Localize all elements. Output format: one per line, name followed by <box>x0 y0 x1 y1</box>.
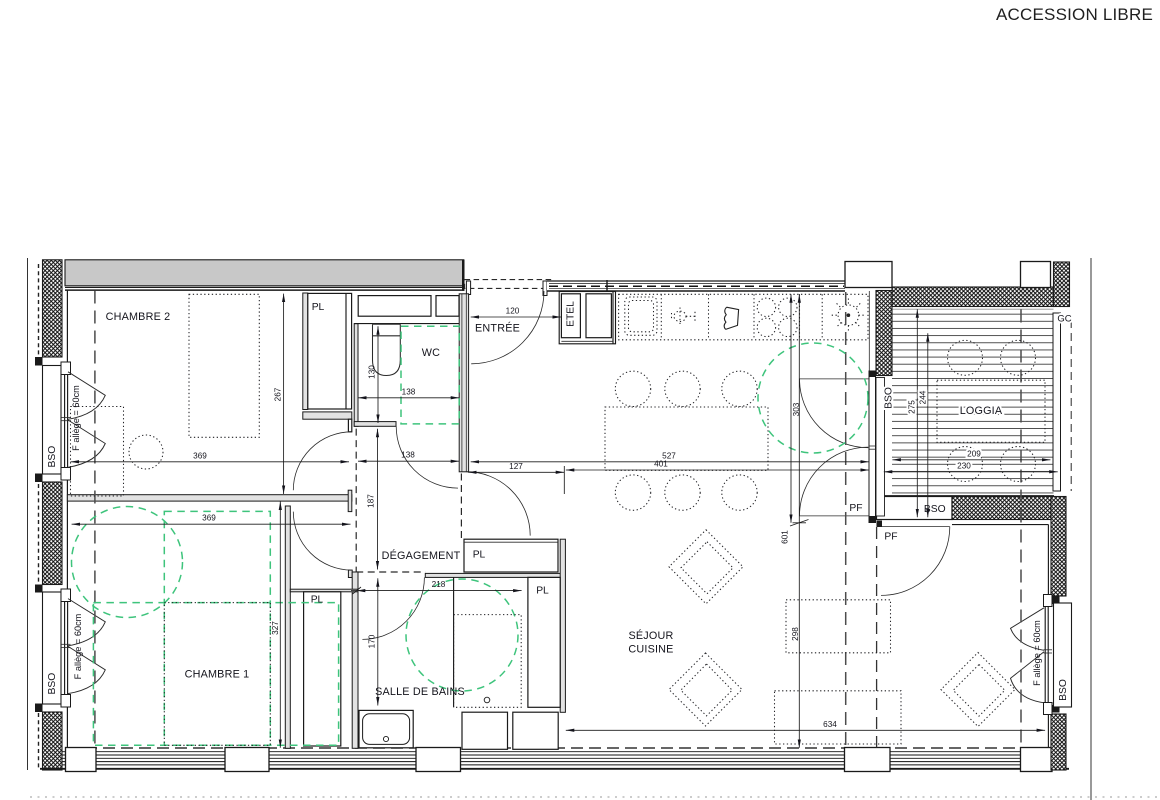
svg-text:PF: PF <box>849 503 862 514</box>
svg-text:303: 303 <box>792 402 801 416</box>
svg-text:BSO: BSO <box>47 673 58 695</box>
svg-text:209: 209 <box>967 449 981 458</box>
svg-text:PL: PL <box>312 302 325 313</box>
svg-text:127: 127 <box>509 462 523 471</box>
svg-text:DÉGAGEMENT: DÉGAGEMENT <box>382 549 461 562</box>
svg-text:244: 244 <box>918 390 927 404</box>
svg-text:GC: GC <box>1057 314 1071 325</box>
svg-text:130: 130 <box>368 365 377 379</box>
svg-text:CHAMBRE 2: CHAMBRE 2 <box>106 311 171 323</box>
svg-text:CUISINE: CUISINE <box>628 644 673 656</box>
svg-text:BSO: BSO <box>47 446 58 468</box>
svg-text:369: 369 <box>202 514 216 523</box>
svg-text:F allège = 60cm: F allège = 60cm <box>71 385 81 451</box>
svg-text:138: 138 <box>401 451 415 460</box>
svg-text:SALLE DE BAINS: SALLE DE BAINS <box>375 686 465 698</box>
svg-text:BSO: BSO <box>1058 679 1069 701</box>
svg-text:230: 230 <box>957 461 971 470</box>
svg-text:F allège = 60cm: F allège = 60cm <box>1032 620 1042 686</box>
svg-text:401: 401 <box>654 460 668 469</box>
svg-text:LOGGIA: LOGGIA <box>960 405 1003 417</box>
svg-text:369: 369 <box>193 451 207 460</box>
svg-text:ENTRÉE: ENTRÉE <box>475 322 520 335</box>
svg-text:170: 170 <box>367 634 376 648</box>
svg-text:275: 275 <box>907 400 916 414</box>
svg-text:PL: PL <box>536 586 549 597</box>
svg-text:SÉJOUR: SÉJOUR <box>629 629 674 642</box>
svg-text:601: 601 <box>781 530 790 544</box>
svg-text:298: 298 <box>791 627 800 641</box>
svg-text:PL: PL <box>473 550 486 561</box>
svg-text:120: 120 <box>506 307 520 316</box>
svg-text:138: 138 <box>402 387 416 396</box>
svg-text:BSO: BSO <box>924 504 946 515</box>
svg-text:CHAMBRE 1: CHAMBRE 1 <box>185 669 250 681</box>
svg-text:F allège = 60cm: F allège = 60cm <box>73 613 83 679</box>
svg-text:267: 267 <box>274 387 283 401</box>
svg-text:634: 634 <box>823 720 837 729</box>
svg-text:PF: PF <box>884 532 897 543</box>
svg-text:ACCESSION LIBRE: ACCESSION LIBRE <box>996 5 1153 24</box>
svg-text:PL: PL <box>311 595 324 606</box>
svg-text:218: 218 <box>432 580 446 589</box>
svg-text:WC: WC <box>422 347 440 359</box>
svg-text:ETEL: ETEL <box>566 301 577 327</box>
svg-text:187: 187 <box>367 494 376 508</box>
svg-text:327: 327 <box>271 621 280 635</box>
svg-text:BSO: BSO <box>884 387 895 409</box>
